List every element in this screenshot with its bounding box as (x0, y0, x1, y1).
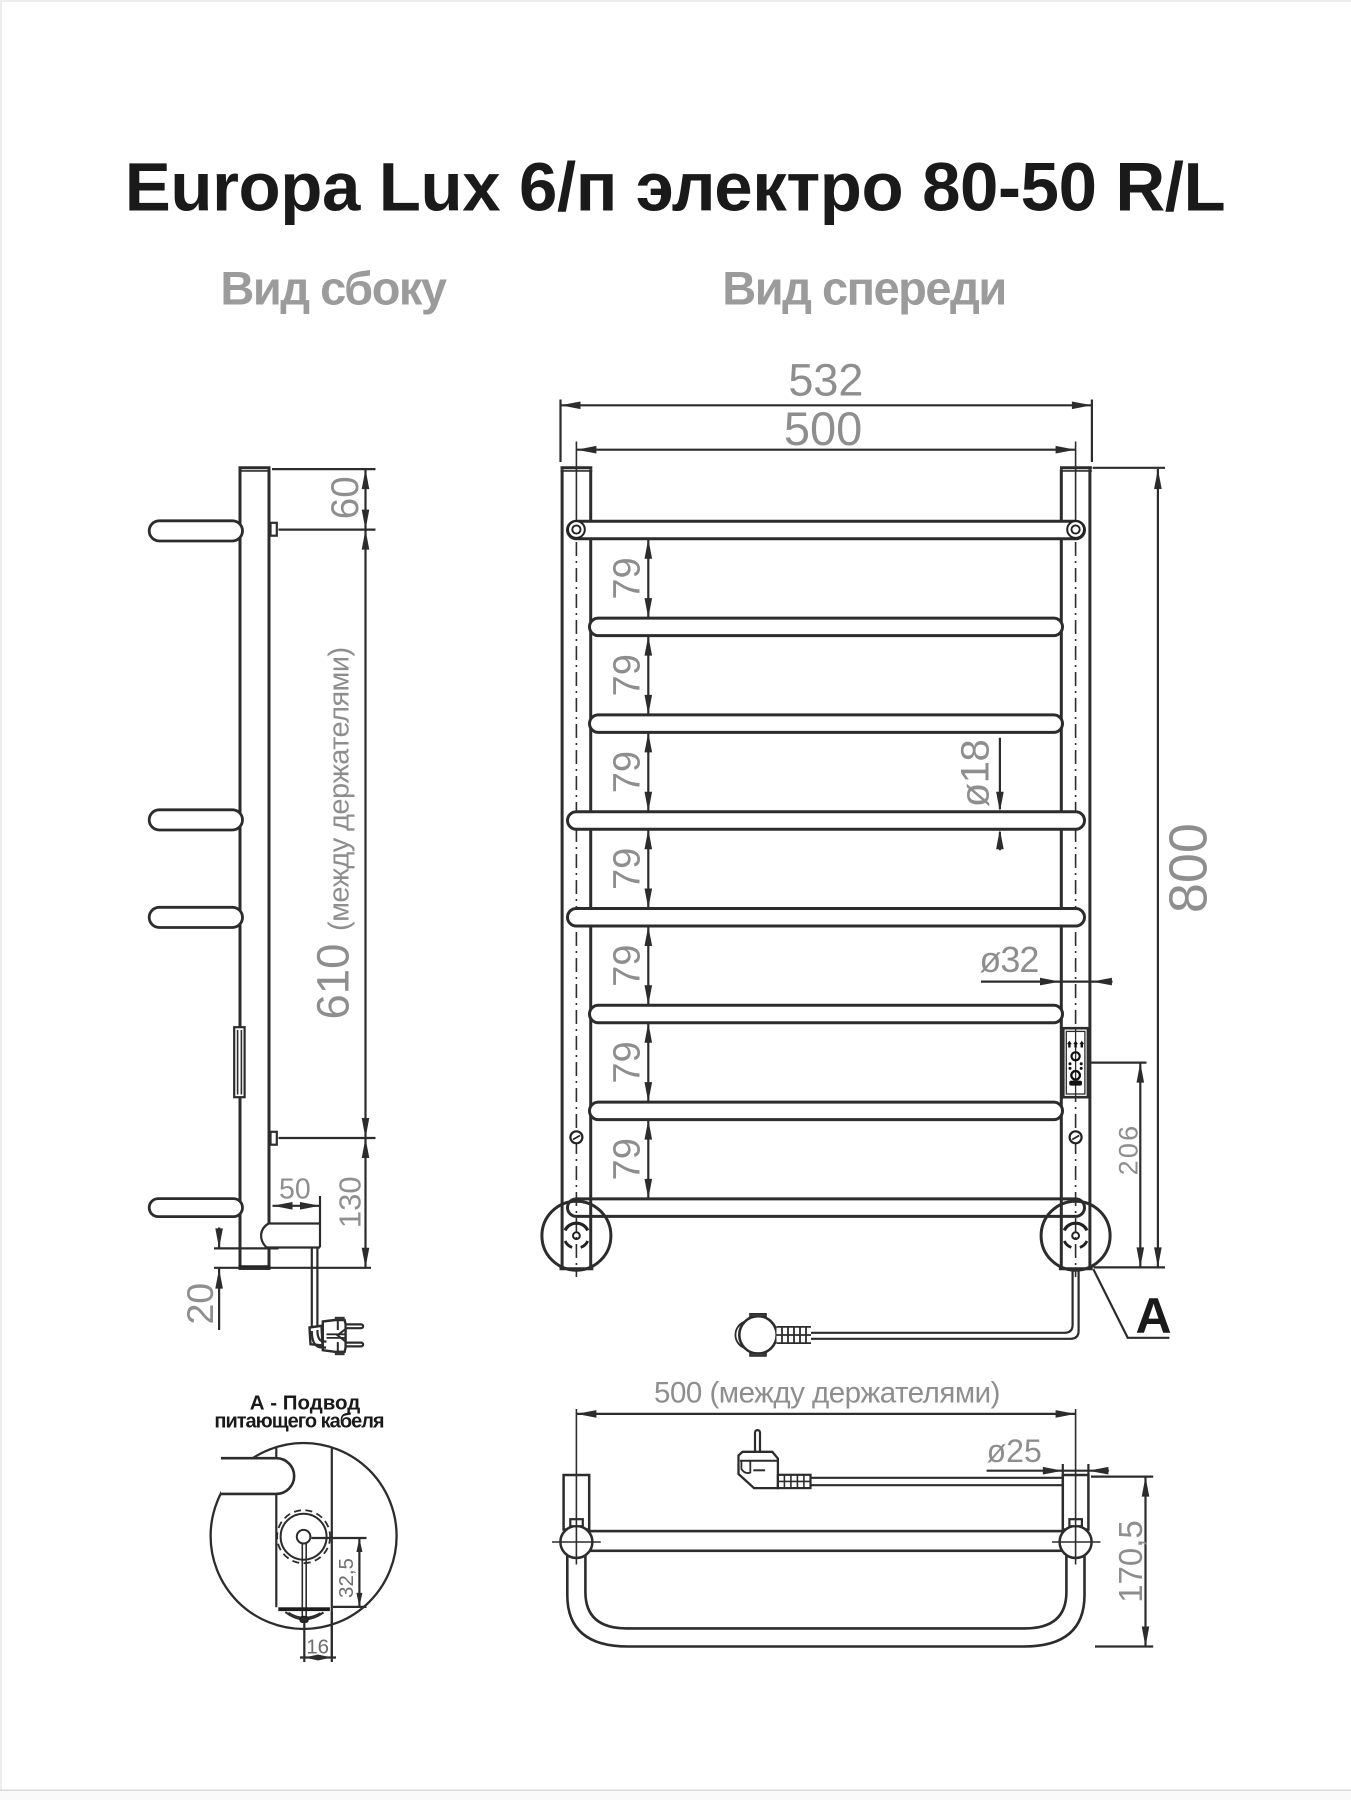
svg-text:50: 50 (279, 1174, 311, 1206)
svg-text:206: 206 (1114, 1124, 1144, 1176)
svg-text:79: 79 (607, 654, 649, 696)
svg-text:Europa Lux 6/п электро 80-50 R: Europa Lux 6/п электро 80-50 R/L (125, 148, 1226, 225)
svg-text:130: 130 (332, 1176, 367, 1228)
svg-text:60: 60 (324, 476, 367, 519)
svg-text:500 (между держателями): 500 (между держателями) (654, 1377, 1000, 1410)
svg-text:79: 79 (607, 751, 649, 793)
svg-text:79: 79 (607, 1041, 649, 1083)
svg-text:ø25: ø25 (987, 1433, 1042, 1469)
svg-text:ø18: ø18 (954, 740, 998, 807)
svg-text:Вид спереди: Вид спереди (722, 262, 1005, 315)
svg-text:32,5: 32,5 (335, 1558, 358, 1598)
svg-text:532: 532 (788, 355, 863, 406)
svg-text:800: 800 (1159, 823, 1219, 913)
svg-text:79: 79 (607, 1138, 649, 1180)
svg-text:питающего кабеля: питающего кабеля (214, 1411, 384, 1433)
svg-text:79: 79 (607, 557, 649, 599)
svg-text:ø32: ø32 (979, 939, 1038, 980)
svg-text:Вид сбоку: Вид сбоку (220, 262, 447, 315)
svg-text:500: 500 (784, 402, 862, 455)
svg-text:79: 79 (607, 945, 649, 987)
svg-text:20: 20 (179, 1283, 221, 1325)
svg-text:79: 79 (607, 848, 649, 890)
svg-text:A: A (1136, 1288, 1172, 1344)
svg-text:16: 16 (306, 1636, 329, 1659)
svg-text:170,5: 170,5 (1112, 1520, 1149, 1603)
